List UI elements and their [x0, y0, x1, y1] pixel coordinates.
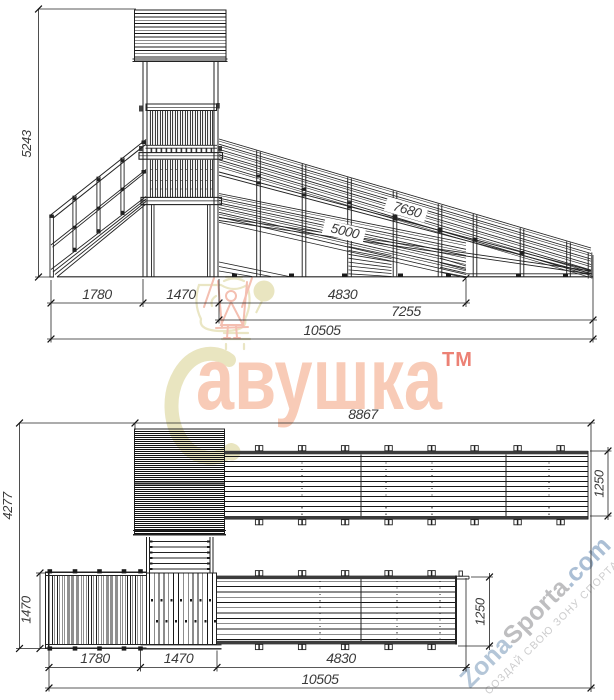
svg-text:4830: 4830: [328, 286, 358, 302]
svg-text:1250: 1250: [473, 597, 488, 625]
svg-text:авушка: авушка: [196, 329, 443, 428]
svg-text:5243: 5243: [19, 129, 34, 157]
svg-text:1250: 1250: [592, 469, 607, 497]
svg-text:1470: 1470: [164, 650, 194, 666]
svg-text:1780: 1780: [80, 650, 110, 666]
svg-text:ТМ: ТМ: [442, 349, 473, 371]
svg-text:8867: 8867: [348, 406, 379, 422]
svg-text:10505: 10505: [304, 322, 342, 338]
svg-text:10505: 10505: [302, 671, 340, 687]
svg-text:1470: 1470: [166, 286, 196, 302]
svg-text:4277: 4277: [0, 491, 15, 519]
svg-text:4830: 4830: [326, 650, 356, 666]
svg-text:1470: 1470: [19, 595, 34, 623]
svg-text:7255: 7255: [391, 303, 421, 319]
svg-text:1780: 1780: [82, 286, 112, 302]
